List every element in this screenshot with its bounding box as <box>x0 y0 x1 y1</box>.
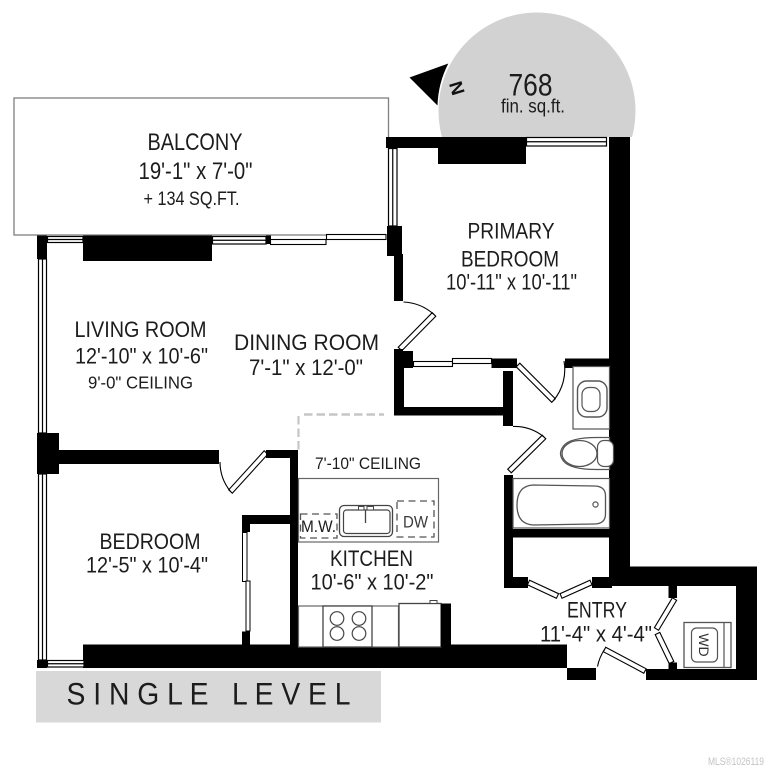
svg-text:12'-5" x 10'-4": 12'-5" x 10'-4" <box>86 553 208 578</box>
svg-text:DINING ROOM: DINING ROOM <box>234 330 379 355</box>
svg-text:BEDROOM: BEDROOM <box>461 247 559 272</box>
svg-text:PRIMARY: PRIMARY <box>468 219 555 244</box>
svg-text:DW: DW <box>403 513 428 532</box>
svg-text:S I N G L E L E V E L: S I N G L E L E V E L <box>67 676 351 712</box>
svg-text:LIVING ROOM: LIVING ROOM <box>75 317 207 342</box>
svg-text:11'-4" x 4'-4": 11'-4" x 4'-4" <box>540 622 652 647</box>
svg-text:MLS®1026119: MLS®1026119 <box>708 756 764 768</box>
svg-text:+ 134 SQ.FT.: + 134 SQ.FT. <box>144 188 240 210</box>
svg-text:M.W.: M.W. <box>301 518 336 536</box>
svg-text:9'-0" CEILING: 9'-0" CEILING <box>88 373 193 393</box>
svg-text:ENTRY: ENTRY <box>567 598 627 623</box>
svg-text:12'-10" x 10'-6": 12'-10" x 10'-6" <box>75 344 208 369</box>
svg-text:10'-11" x 10'-11": 10'-11" x 10'-11" <box>446 270 577 295</box>
svg-text:WD: WD <box>696 633 712 656</box>
svg-text:BEDROOM: BEDROOM <box>100 529 201 554</box>
svg-text:KITCHEN: KITCHEN <box>330 546 413 571</box>
svg-text:19'-1" x 7'-0": 19'-1" x 7'-0" <box>139 158 253 185</box>
svg-text:10'-6" x 10'-2": 10'-6" x 10'-2" <box>311 570 434 595</box>
svg-text:7'-10" CEILING: 7'-10" CEILING <box>315 454 421 473</box>
svg-text:BALCONY: BALCONY <box>148 129 243 156</box>
svg-text:fin. sq.ft.: fin. sq.ft. <box>501 96 565 118</box>
svg-text:7'-1" x 12'-0": 7'-1" x 12'-0" <box>249 355 363 380</box>
